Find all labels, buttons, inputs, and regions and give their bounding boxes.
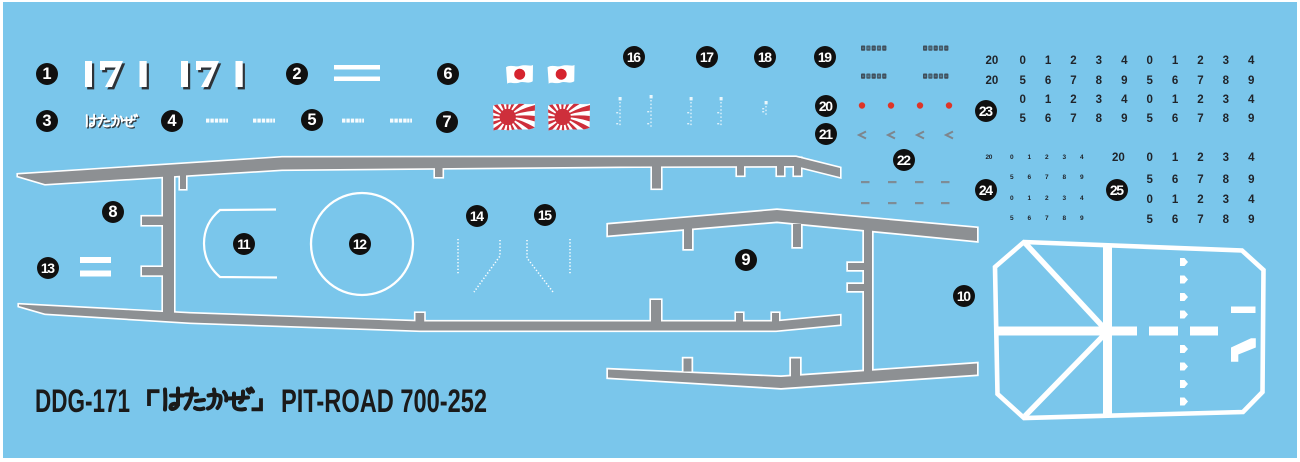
svg-text:DDG-171: DDG-171 xyxy=(35,383,130,419)
svg-text:PIT-ROAD 700-252: PIT-ROAD 700-252 xyxy=(281,383,487,419)
